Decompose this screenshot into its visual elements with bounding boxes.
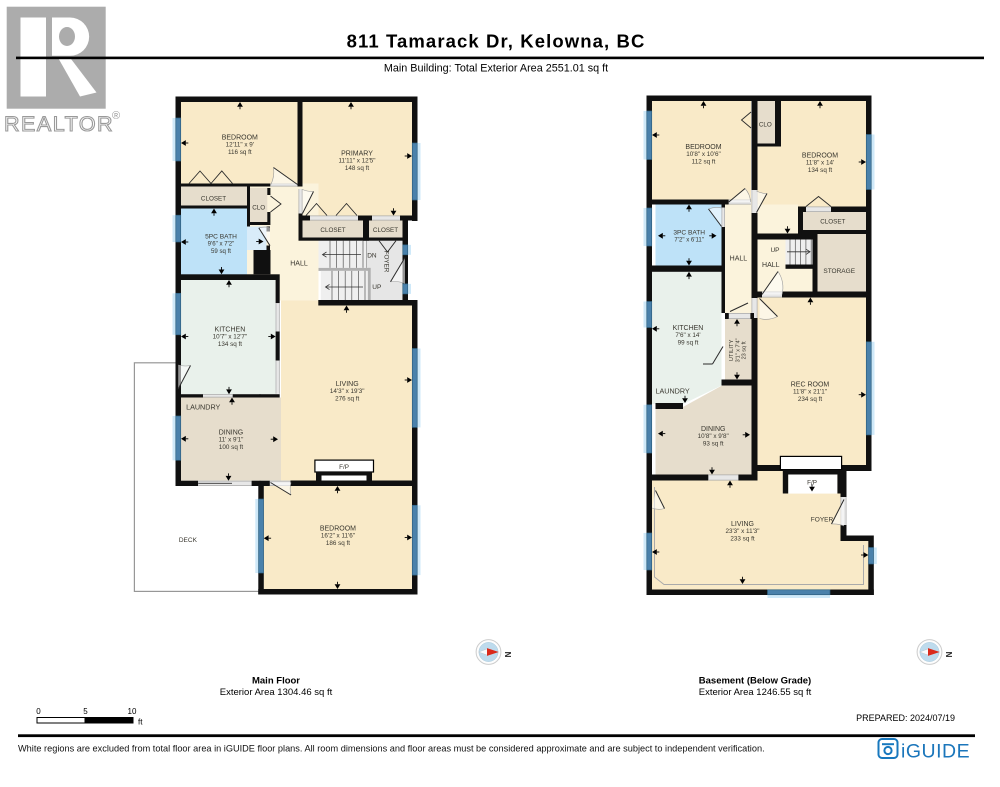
svg-text:12'11" x 9': 12'11" x 9' bbox=[226, 142, 254, 149]
svg-text:BEDROOM: BEDROOM bbox=[802, 153, 838, 160]
svg-text:Main Building: Total Exterior: Main Building: Total Exterior Area 2551.… bbox=[384, 63, 608, 75]
svg-text:112 sq ft: 112 sq ft bbox=[692, 158, 716, 165]
svg-text:LIVING: LIVING bbox=[336, 381, 359, 388]
svg-text:134 sq ft: 134 sq ft bbox=[808, 167, 832, 174]
svg-text:0: 0 bbox=[36, 707, 41, 716]
svg-text:LIVING: LIVING bbox=[731, 521, 754, 528]
svg-text:REC ROOM: REC ROOM bbox=[791, 382, 830, 389]
svg-text:HALL: HALL bbox=[730, 256, 748, 263]
svg-text:16'2" x 11'6": 16'2" x 11'6" bbox=[321, 533, 355, 540]
svg-text:F/P: F/P bbox=[339, 464, 349, 471]
svg-text:811 Tamarack Dr, Kelowna, BC: 811 Tamarack Dr, Kelowna, BC bbox=[347, 31, 646, 52]
svg-text:9'6" x 7'2": 9'6" x 7'2" bbox=[208, 241, 235, 248]
svg-text:134 sq ft: 134 sq ft bbox=[218, 341, 242, 348]
svg-text:CLOSET: CLOSET bbox=[320, 227, 345, 234]
svg-text:FOYER: FOYER bbox=[811, 517, 834, 524]
svg-text:Basement (Below Grade): Basement (Below Grade) bbox=[699, 676, 811, 687]
svg-text:11'11" x 12'5": 11'11" x 12'5" bbox=[338, 158, 375, 165]
svg-text:10'8" x 9'8": 10'8" x 9'8" bbox=[698, 433, 729, 440]
svg-text:Exterior Area 1246.55 sq ft: Exterior Area 1246.55 sq ft bbox=[699, 687, 812, 698]
svg-text:5PC BATH: 5PC BATH bbox=[205, 234, 237, 241]
svg-text:5: 5 bbox=[83, 707, 88, 716]
svg-text:234 sq ft: 234 sq ft bbox=[798, 396, 822, 403]
svg-text:148 sq ft: 148 sq ft bbox=[345, 165, 369, 172]
svg-text:233 sq ft: 233 sq ft bbox=[730, 535, 754, 542]
svg-text:HALL: HALL bbox=[290, 261, 308, 268]
svg-text:276 sq ft: 276 sq ft bbox=[335, 395, 359, 402]
svg-text:Exterior Area 1304.46 sq ft: Exterior Area 1304.46 sq ft bbox=[220, 687, 333, 698]
svg-text:116 sq ft: 116 sq ft bbox=[228, 149, 252, 156]
svg-text:DN: DN bbox=[367, 252, 377, 259]
svg-text:11'8" x 21'1": 11'8" x 21'1" bbox=[793, 389, 827, 396]
svg-text:BEDROOM: BEDROOM bbox=[685, 144, 721, 151]
svg-text:CLOSET: CLOSET bbox=[373, 227, 398, 234]
svg-text:®: ® bbox=[112, 110, 120, 122]
svg-text:7'6" x 14': 7'6" x 14' bbox=[675, 332, 700, 339]
svg-text:CLO: CLO bbox=[759, 122, 772, 129]
svg-text:N: N bbox=[944, 652, 953, 658]
svg-text:KITCHEN: KITCHEN bbox=[673, 325, 704, 332]
svg-text:LAUNDRY: LAUNDRY bbox=[655, 387, 689, 396]
svg-text:DECK: DECK bbox=[179, 537, 198, 544]
svg-text:UP: UP bbox=[770, 247, 779, 254]
svg-text:iGUIDE: iGUIDE bbox=[901, 741, 970, 763]
svg-text:UTILITY: UTILITY bbox=[729, 339, 735, 361]
svg-text:99 sq ft: 99 sq ft bbox=[678, 339, 699, 346]
svg-text:HALL: HALL bbox=[762, 262, 780, 269]
svg-text:11'8" x 14': 11'8" x 14' bbox=[806, 160, 834, 167]
svg-text:PREPARED: 2024/07/19: PREPARED: 2024/07/19 bbox=[856, 713, 955, 723]
svg-text:KITCHEN: KITCHEN bbox=[215, 327, 246, 334]
svg-text:10'8" x 10'6": 10'8" x 10'6" bbox=[686, 151, 721, 158]
svg-text:CLO: CLO bbox=[252, 205, 265, 212]
svg-text:100 sq ft: 100 sq ft bbox=[219, 444, 243, 451]
svg-text:10'7" x 12'7": 10'7" x 12'7" bbox=[213, 334, 248, 341]
svg-text:STORAGE: STORAGE bbox=[823, 268, 855, 275]
svg-text:23'3" x 11'3": 23'3" x 11'3" bbox=[725, 528, 759, 535]
svg-text:3PC BATH: 3PC BATH bbox=[673, 230, 705, 237]
svg-text:BEDROOM: BEDROOM bbox=[320, 526, 356, 533]
svg-text:23 sq ft: 23 sq ft bbox=[741, 341, 747, 360]
svg-text:11' x 9'1": 11' x 9'1" bbox=[219, 437, 244, 444]
svg-text:10: 10 bbox=[128, 707, 137, 716]
svg-text:UP: UP bbox=[372, 284, 381, 291]
svg-text:DINING: DINING bbox=[219, 430, 244, 437]
svg-text:White regions are excluded fro: White regions are excluded from total fl… bbox=[18, 744, 765, 754]
svg-text:LAUNDRY: LAUNDRY bbox=[186, 403, 220, 412]
svg-text:CLOSET: CLOSET bbox=[820, 218, 845, 225]
svg-text:7'2" x 6'11": 7'2" x 6'11" bbox=[674, 237, 704, 244]
svg-text:CLOSET: CLOSET bbox=[201, 196, 226, 203]
svg-text:REALTOR: REALTOR bbox=[4, 112, 114, 136]
svg-text:93 sq ft: 93 sq ft bbox=[703, 440, 724, 447]
svg-text:FOYER: FOYER bbox=[383, 251, 390, 273]
svg-text:186 sq ft: 186 sq ft bbox=[326, 540, 350, 547]
svg-text:Main Floor: Main Floor bbox=[252, 676, 300, 687]
svg-text:ft: ft bbox=[138, 718, 143, 727]
svg-text:59 sq ft: 59 sq ft bbox=[211, 248, 231, 255]
svg-text:N: N bbox=[503, 652, 512, 658]
svg-text:PRIMARY: PRIMARY bbox=[341, 151, 373, 158]
svg-text:BEDROOM: BEDROOM bbox=[222, 135, 258, 142]
svg-text:DINING: DINING bbox=[701, 426, 726, 433]
svg-text:14'3" x 19'3": 14'3" x 19'3" bbox=[330, 388, 365, 395]
